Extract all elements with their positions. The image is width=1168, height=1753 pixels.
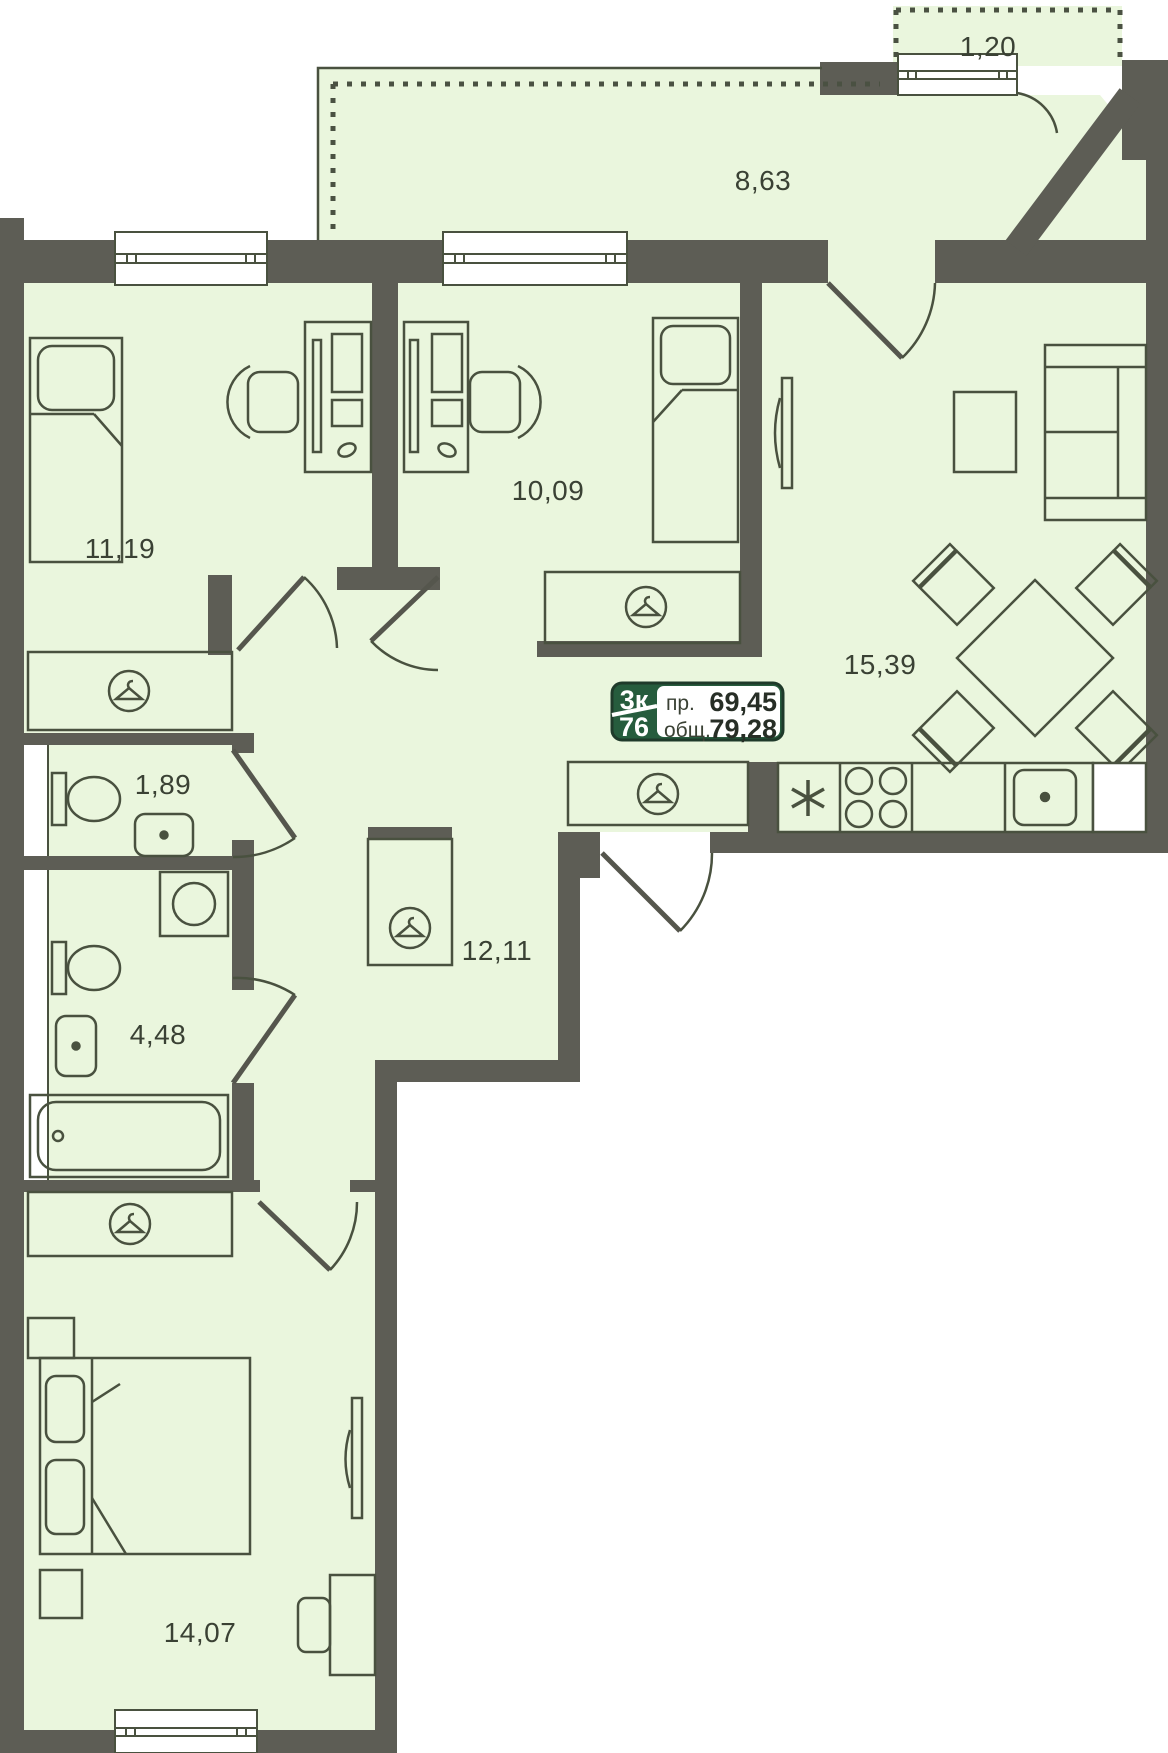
duct-bath — [24, 870, 48, 1180]
wall-step — [375, 1060, 580, 1082]
wall-wardrobe-top — [368, 827, 452, 839]
room-area-label-bedroom-middle: 10,09 — [512, 475, 585, 506]
wall-bottom-right-2 — [710, 832, 1146, 853]
room-area-label-balcony: 1,20 — [960, 31, 1017, 62]
badge-living-label: пр. — [666, 692, 695, 715]
badge-living-value: 69,45 — [709, 687, 777, 717]
duct-wc — [24, 745, 48, 856]
room-area-label-living: 15,39 — [844, 649, 917, 680]
wall-right — [1146, 150, 1168, 853]
wall-bottom-right-1 — [558, 832, 600, 853]
wall-wc-top — [24, 733, 232, 745]
floor-plan: 1,20 8,63 11,19 10,09 15,39 1,89 4,48 12… — [0, 0, 1168, 1753]
room-area-label-bedroom-left: 11,19 — [85, 533, 156, 564]
wall-entrance-corner — [558, 853, 600, 878]
room-area-label-bathroom: 4,48 — [130, 1019, 187, 1050]
shafts — [24, 745, 48, 1180]
area-badge: 3к 76 пр. 69,45 общ. 79,28 — [612, 683, 783, 744]
room-area-label-loggia: 8,63 — [735, 165, 792, 196]
badge-number: 76 — [619, 712, 649, 742]
room-area-label-wc: 1,89 — [135, 769, 192, 800]
room-area-label-hallway: 12,11 — [462, 935, 533, 966]
wall-wc-right-2 — [232, 840, 254, 990]
window-bedroom-master — [115, 1710, 257, 1753]
wall-living-divider — [740, 283, 762, 657]
wall-left — [0, 218, 24, 1753]
window-bedroom-left — [115, 232, 267, 285]
room-area-label-master: 14,07 — [164, 1617, 237, 1648]
floor-plan-canvas: 1,20 8,63 11,19 10,09 15,39 1,89 4,48 12… — [0, 0, 1168, 1753]
wall-top-3 — [627, 240, 828, 283]
badge-total-value: 79,28 — [709, 714, 777, 744]
wall-wc-bath-divider — [24, 856, 232, 870]
wall-master-right — [375, 1060, 397, 1753]
badge-type: 3к — [620, 685, 649, 715]
kitchen-duct — [1093, 763, 1146, 832]
wall-corridor-stub — [208, 575, 232, 655]
wall-bath-bottom — [24, 1180, 260, 1192]
wall-top-1 — [24, 240, 115, 283]
wall-top-4 — [935, 240, 1146, 283]
wall-wc-right-3 — [232, 1083, 254, 1192]
window-bedroom-middle — [443, 232, 627, 285]
wall-bedrooms-divider — [372, 283, 398, 575]
badge-total-label: общ. — [664, 719, 711, 742]
entrance-opening — [600, 832, 710, 853]
wall-balcony-stub — [820, 62, 900, 95]
wall-top-2 — [267, 240, 443, 283]
wall-kitchen-stub — [748, 762, 778, 832]
wall-hall-right — [558, 878, 580, 1082]
